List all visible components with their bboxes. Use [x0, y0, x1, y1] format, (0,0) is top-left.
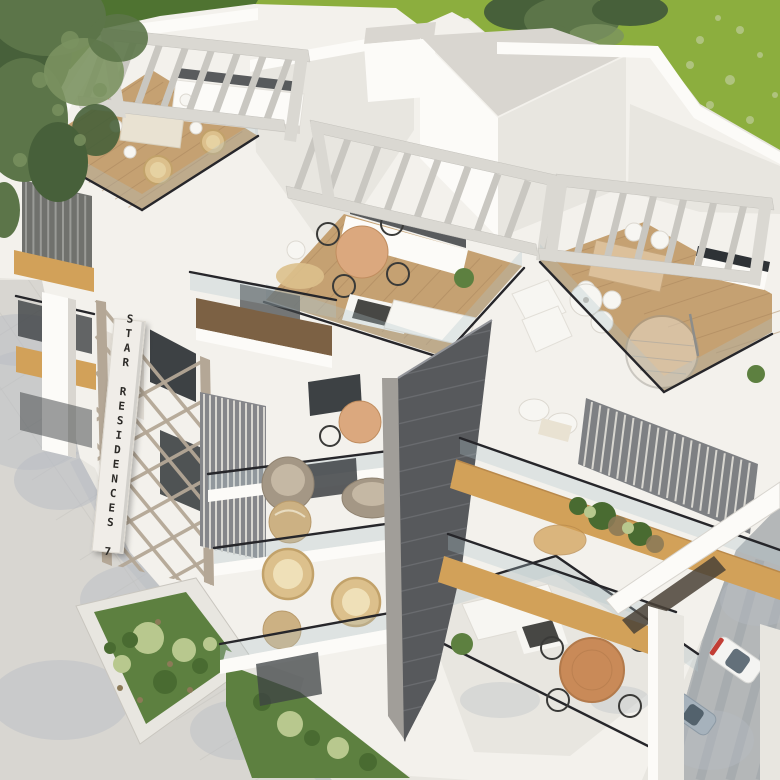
trailing-plants-light-0 [584, 506, 596, 518]
shrubs-dark-1 [304, 730, 320, 746]
soil-speckles-3 [117, 685, 123, 691]
balcony-table [339, 401, 381, 443]
soil-speckles-2 [187, 687, 193, 693]
soil-speckles-4 [155, 619, 161, 625]
shrubs-light-1 [327, 737, 349, 759]
lawn-dry-speckles-1 [725, 75, 735, 85]
shrubs-dark-0 [153, 670, 177, 694]
leaf-highlights-5 [52, 104, 64, 116]
tree-crown [88, 14, 148, 62]
lawn-dry-speckles-7 [706, 101, 714, 109]
soil-speckles-0 [137, 697, 143, 703]
soil-speckles-1 [167, 661, 173, 667]
dining-chair [651, 231, 669, 249]
lawn-dry-speckles-5 [686, 61, 694, 69]
shrubs-dark-1 [122, 632, 138, 648]
round-dining-table [560, 638, 624, 702]
street-column-highlight [648, 606, 658, 780]
shrubs-light-1 [172, 638, 196, 662]
leaf-highlights-4 [74, 134, 86, 146]
balcony-chair [519, 399, 549, 421]
lawn-dry-speckles-6 [757, 52, 763, 58]
dining-chair [124, 146, 136, 158]
lawn-dry-speckles-3 [746, 116, 754, 124]
shrubs-light-0 [277, 711, 303, 737]
dining-chair [603, 291, 621, 309]
armchair-cushion [271, 464, 305, 496]
lawn-dry-speckles-0 [696, 36, 704, 44]
potted-plant [451, 633, 473, 655]
potted-plant [454, 268, 474, 288]
wicker-cushion [342, 588, 370, 616]
leaf-highlights-3 [13, 153, 27, 167]
lounge-chair [287, 241, 305, 259]
trailing-plants-light-1 [622, 522, 634, 534]
leaf-highlights-2 [32, 72, 48, 88]
deck-plant [747, 365, 765, 383]
shrubs-dark-2 [359, 753, 377, 771]
round-dining-table [336, 226, 388, 278]
lawn-dry-speckles-12 [715, 15, 721, 21]
floor-dapple [460, 682, 540, 718]
dining-chair [190, 122, 202, 134]
curved-daybed [276, 263, 324, 289]
lawn-dry-speckles-9 [736, 26, 744, 34]
tree-crown [72, 104, 120, 156]
trailing-plants-olive-1 [646, 535, 664, 553]
wicker-chair-cushion [150, 162, 166, 178]
render-canvas: STAR RESIDENCES 7 [0, 0, 780, 780]
round-jute-rug [534, 525, 586, 555]
leaf-highlights-1 [93, 83, 107, 97]
shrubs-dark-2 [192, 658, 208, 674]
street-column [760, 624, 780, 780]
shrubs-light-2 [113, 655, 131, 673]
wicker-cushion [273, 559, 303, 589]
shrubs-light-3 [203, 637, 217, 651]
lawn-dry-speckles-10 [772, 92, 778, 98]
shrubs-dark-3 [104, 642, 116, 654]
leaf-highlights-0 [61, 31, 79, 49]
